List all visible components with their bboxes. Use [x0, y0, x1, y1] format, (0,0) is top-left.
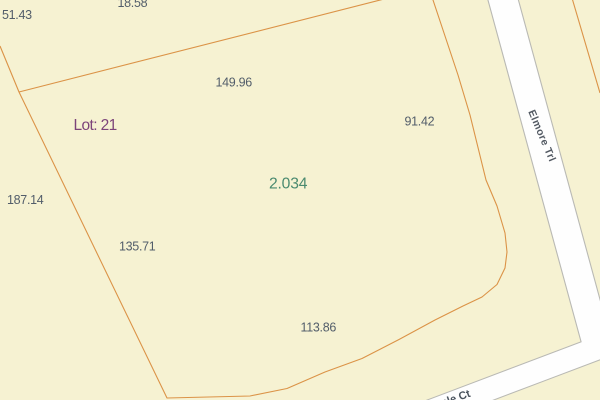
- svg-text:149.96: 149.96: [216, 76, 253, 90]
- svg-text:2.034: 2.034: [269, 176, 308, 193]
- svg-text:113.86: 113.86: [301, 321, 337, 335]
- svg-text:91.42: 91.42: [405, 115, 435, 129]
- svg-text:51.43: 51.43: [2, 8, 32, 22]
- svg-text:187.14: 187.14: [7, 193, 44, 207]
- svg-text:Lot: 21: Lot: 21: [74, 117, 117, 134]
- svg-text:18.58: 18.58: [118, 0, 148, 10]
- svg-text:135.71: 135.71: [119, 240, 156, 254]
